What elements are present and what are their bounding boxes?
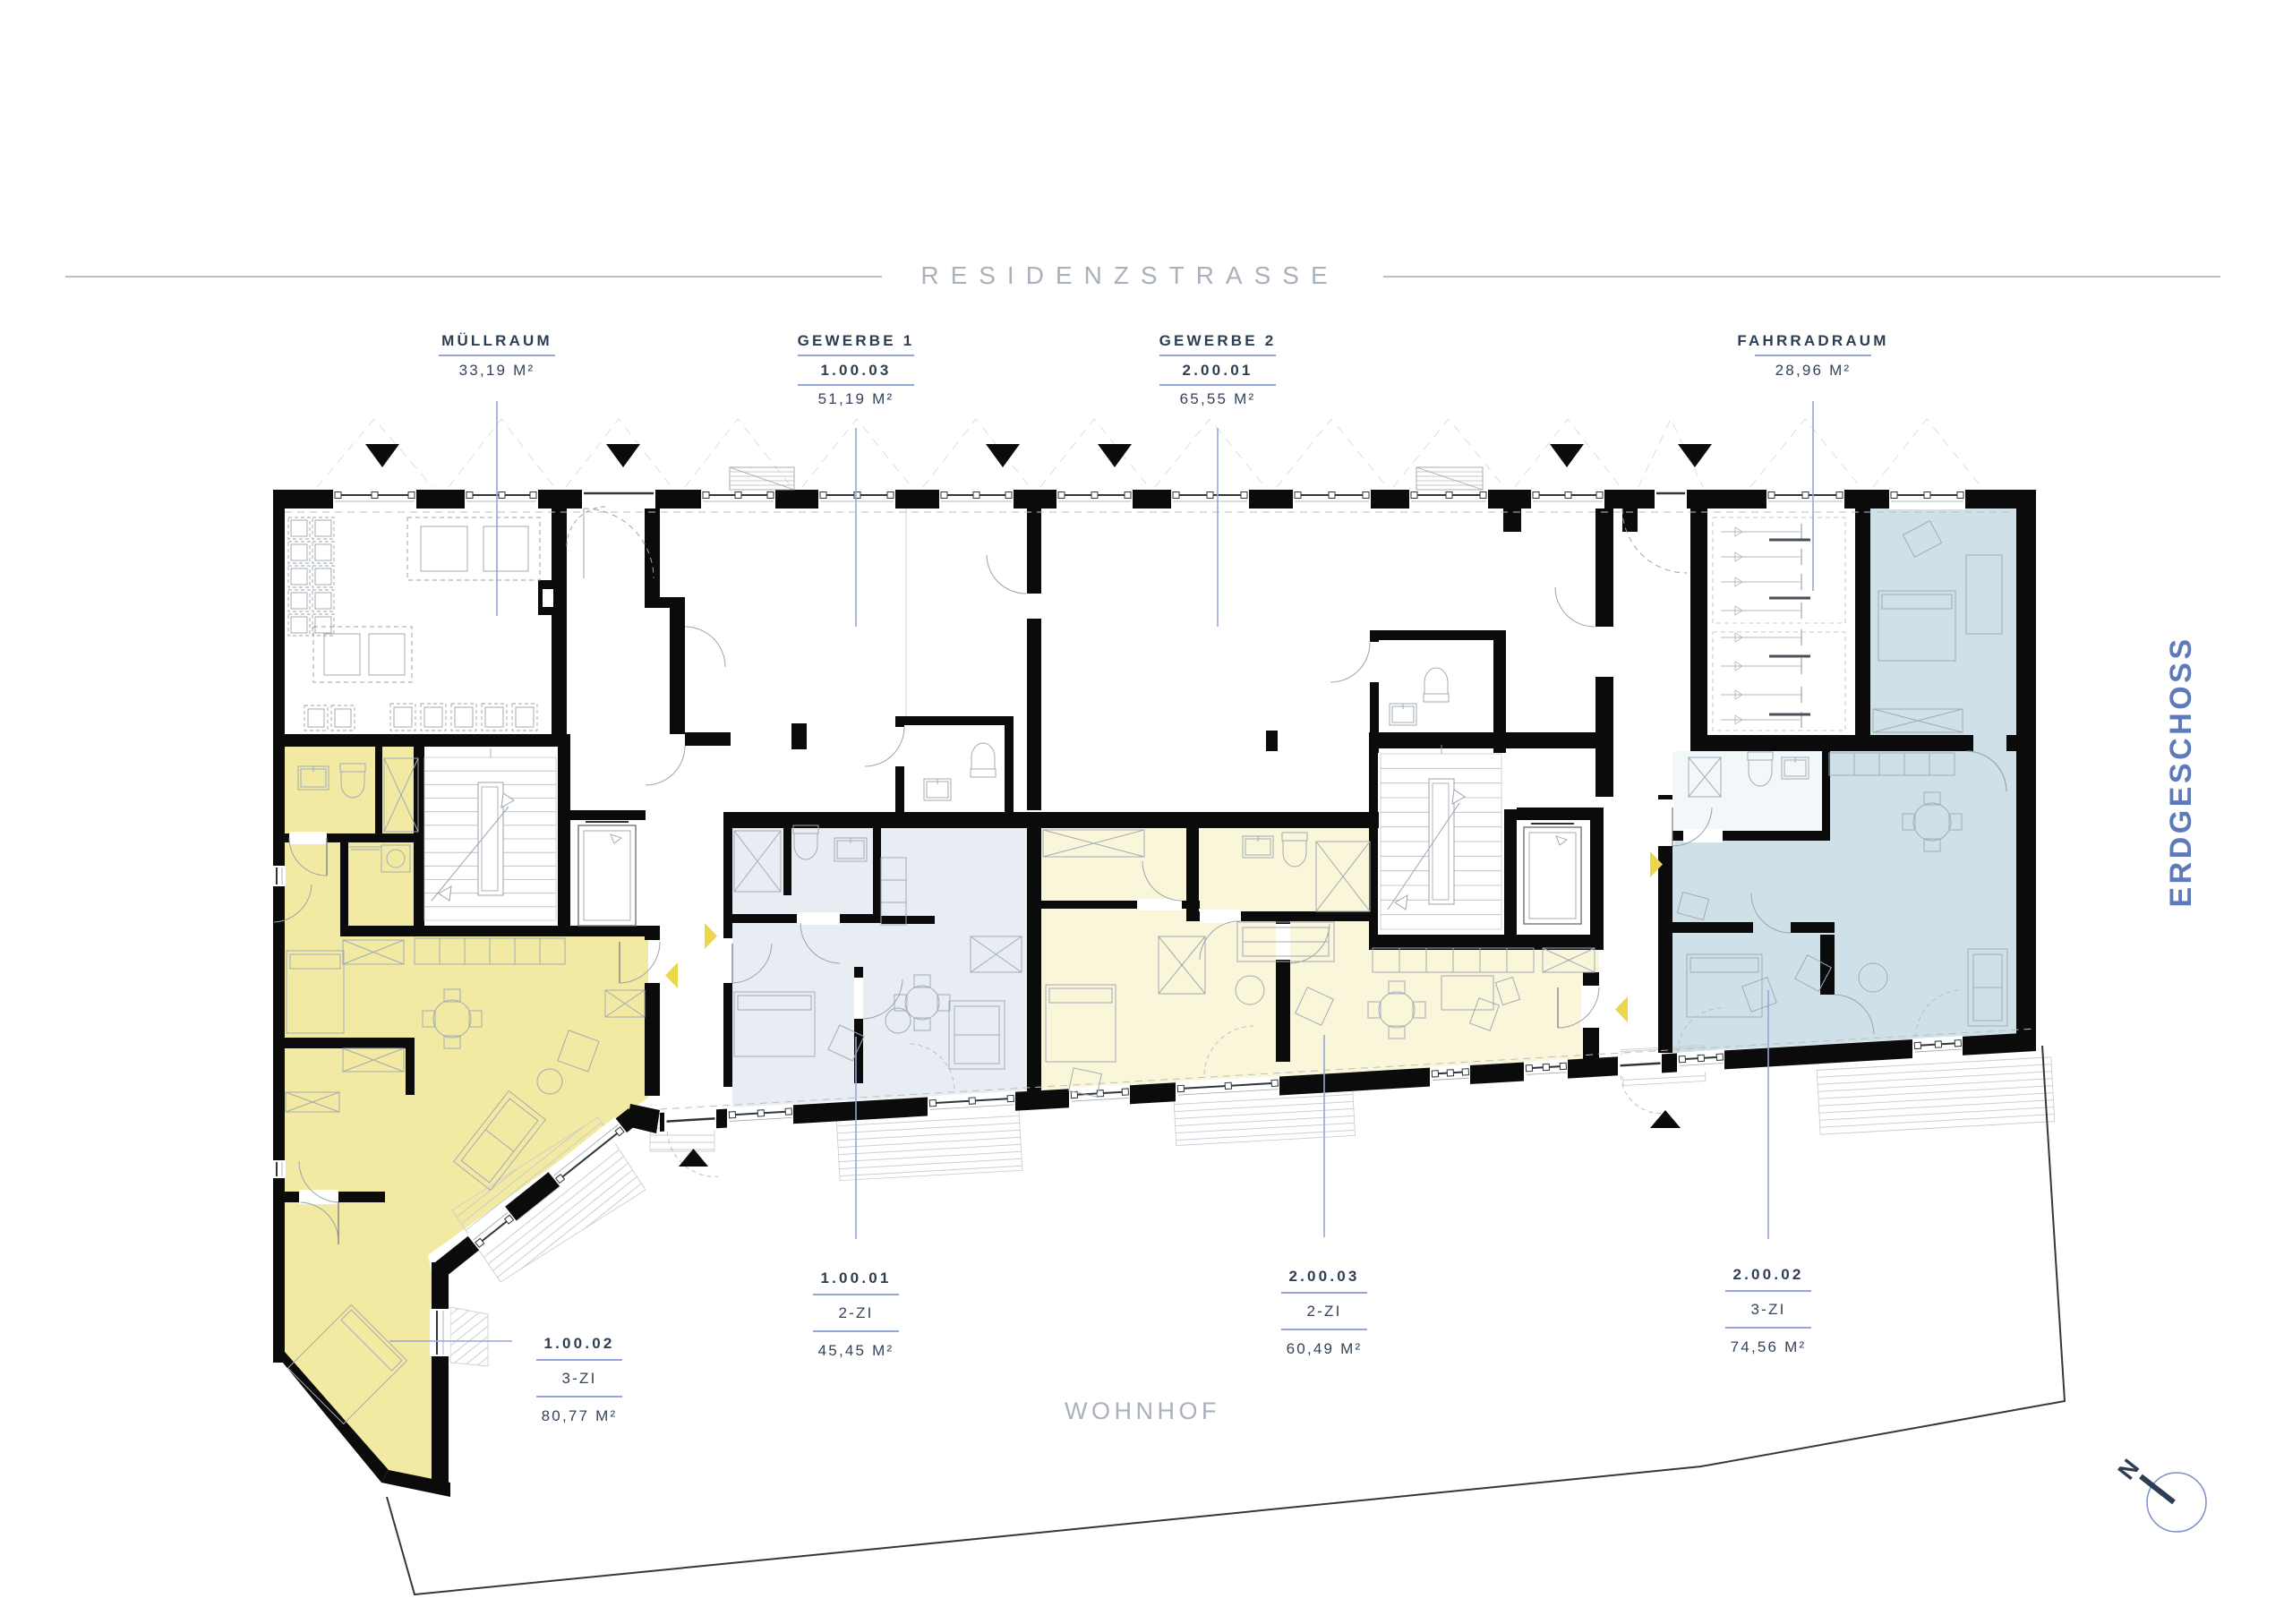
svg-text:2-ZI: 2-ZI [838, 1304, 873, 1321]
svg-text:3-ZI: 3-ZI [1750, 1301, 1785, 1318]
svg-text:33,19 M²: 33,19 M² [459, 362, 535, 379]
svg-text:74,56 M²: 74,56 M² [1731, 1338, 1807, 1355]
svg-text:1.00.02: 1.00.02 [543, 1335, 614, 1352]
svg-text:3-ZI: 3-ZI [561, 1370, 596, 1387]
svg-text:1.00.01: 1.00.01 [820, 1269, 891, 1286]
svg-text:28,96 M²: 28,96 M² [1775, 362, 1852, 379]
svg-text:RESIDENZSTRASSE: RESIDENZSTRASSE [920, 261, 1339, 289]
svg-text:2.00.01: 2.00.01 [1182, 362, 1253, 379]
svg-text:GEWERBE 2: GEWERBE 2 [1159, 332, 1277, 349]
svg-text:MÜLLRAUM: MÜLLRAUM [441, 332, 552, 349]
svg-text:WOHNHOF: WOHNHOF [1065, 1397, 1220, 1424]
svg-text:60,49 M²: 60,49 M² [1287, 1340, 1363, 1357]
svg-text:65,55 M²: 65,55 M² [1180, 390, 1256, 407]
svg-text:51,19 M²: 51,19 M² [818, 390, 894, 407]
svg-text:2.00.03: 2.00.03 [1288, 1268, 1359, 1285]
svg-text:80,77 M²: 80,77 M² [542, 1407, 618, 1424]
svg-text:FAHRRADRAUM: FAHRRADRAUM [1737, 332, 1888, 349]
svg-text:2-ZI: 2-ZI [1306, 1303, 1341, 1320]
svg-text:2.00.02: 2.00.02 [1732, 1266, 1803, 1283]
svg-text:GEWERBE 1: GEWERBE 1 [798, 332, 915, 349]
svg-text:1.00.03: 1.00.03 [820, 362, 891, 379]
svg-text:45,45 M²: 45,45 M² [818, 1342, 894, 1359]
svg-text:ERDGESCHOSS: ERDGESCHOSS [2164, 637, 2198, 908]
